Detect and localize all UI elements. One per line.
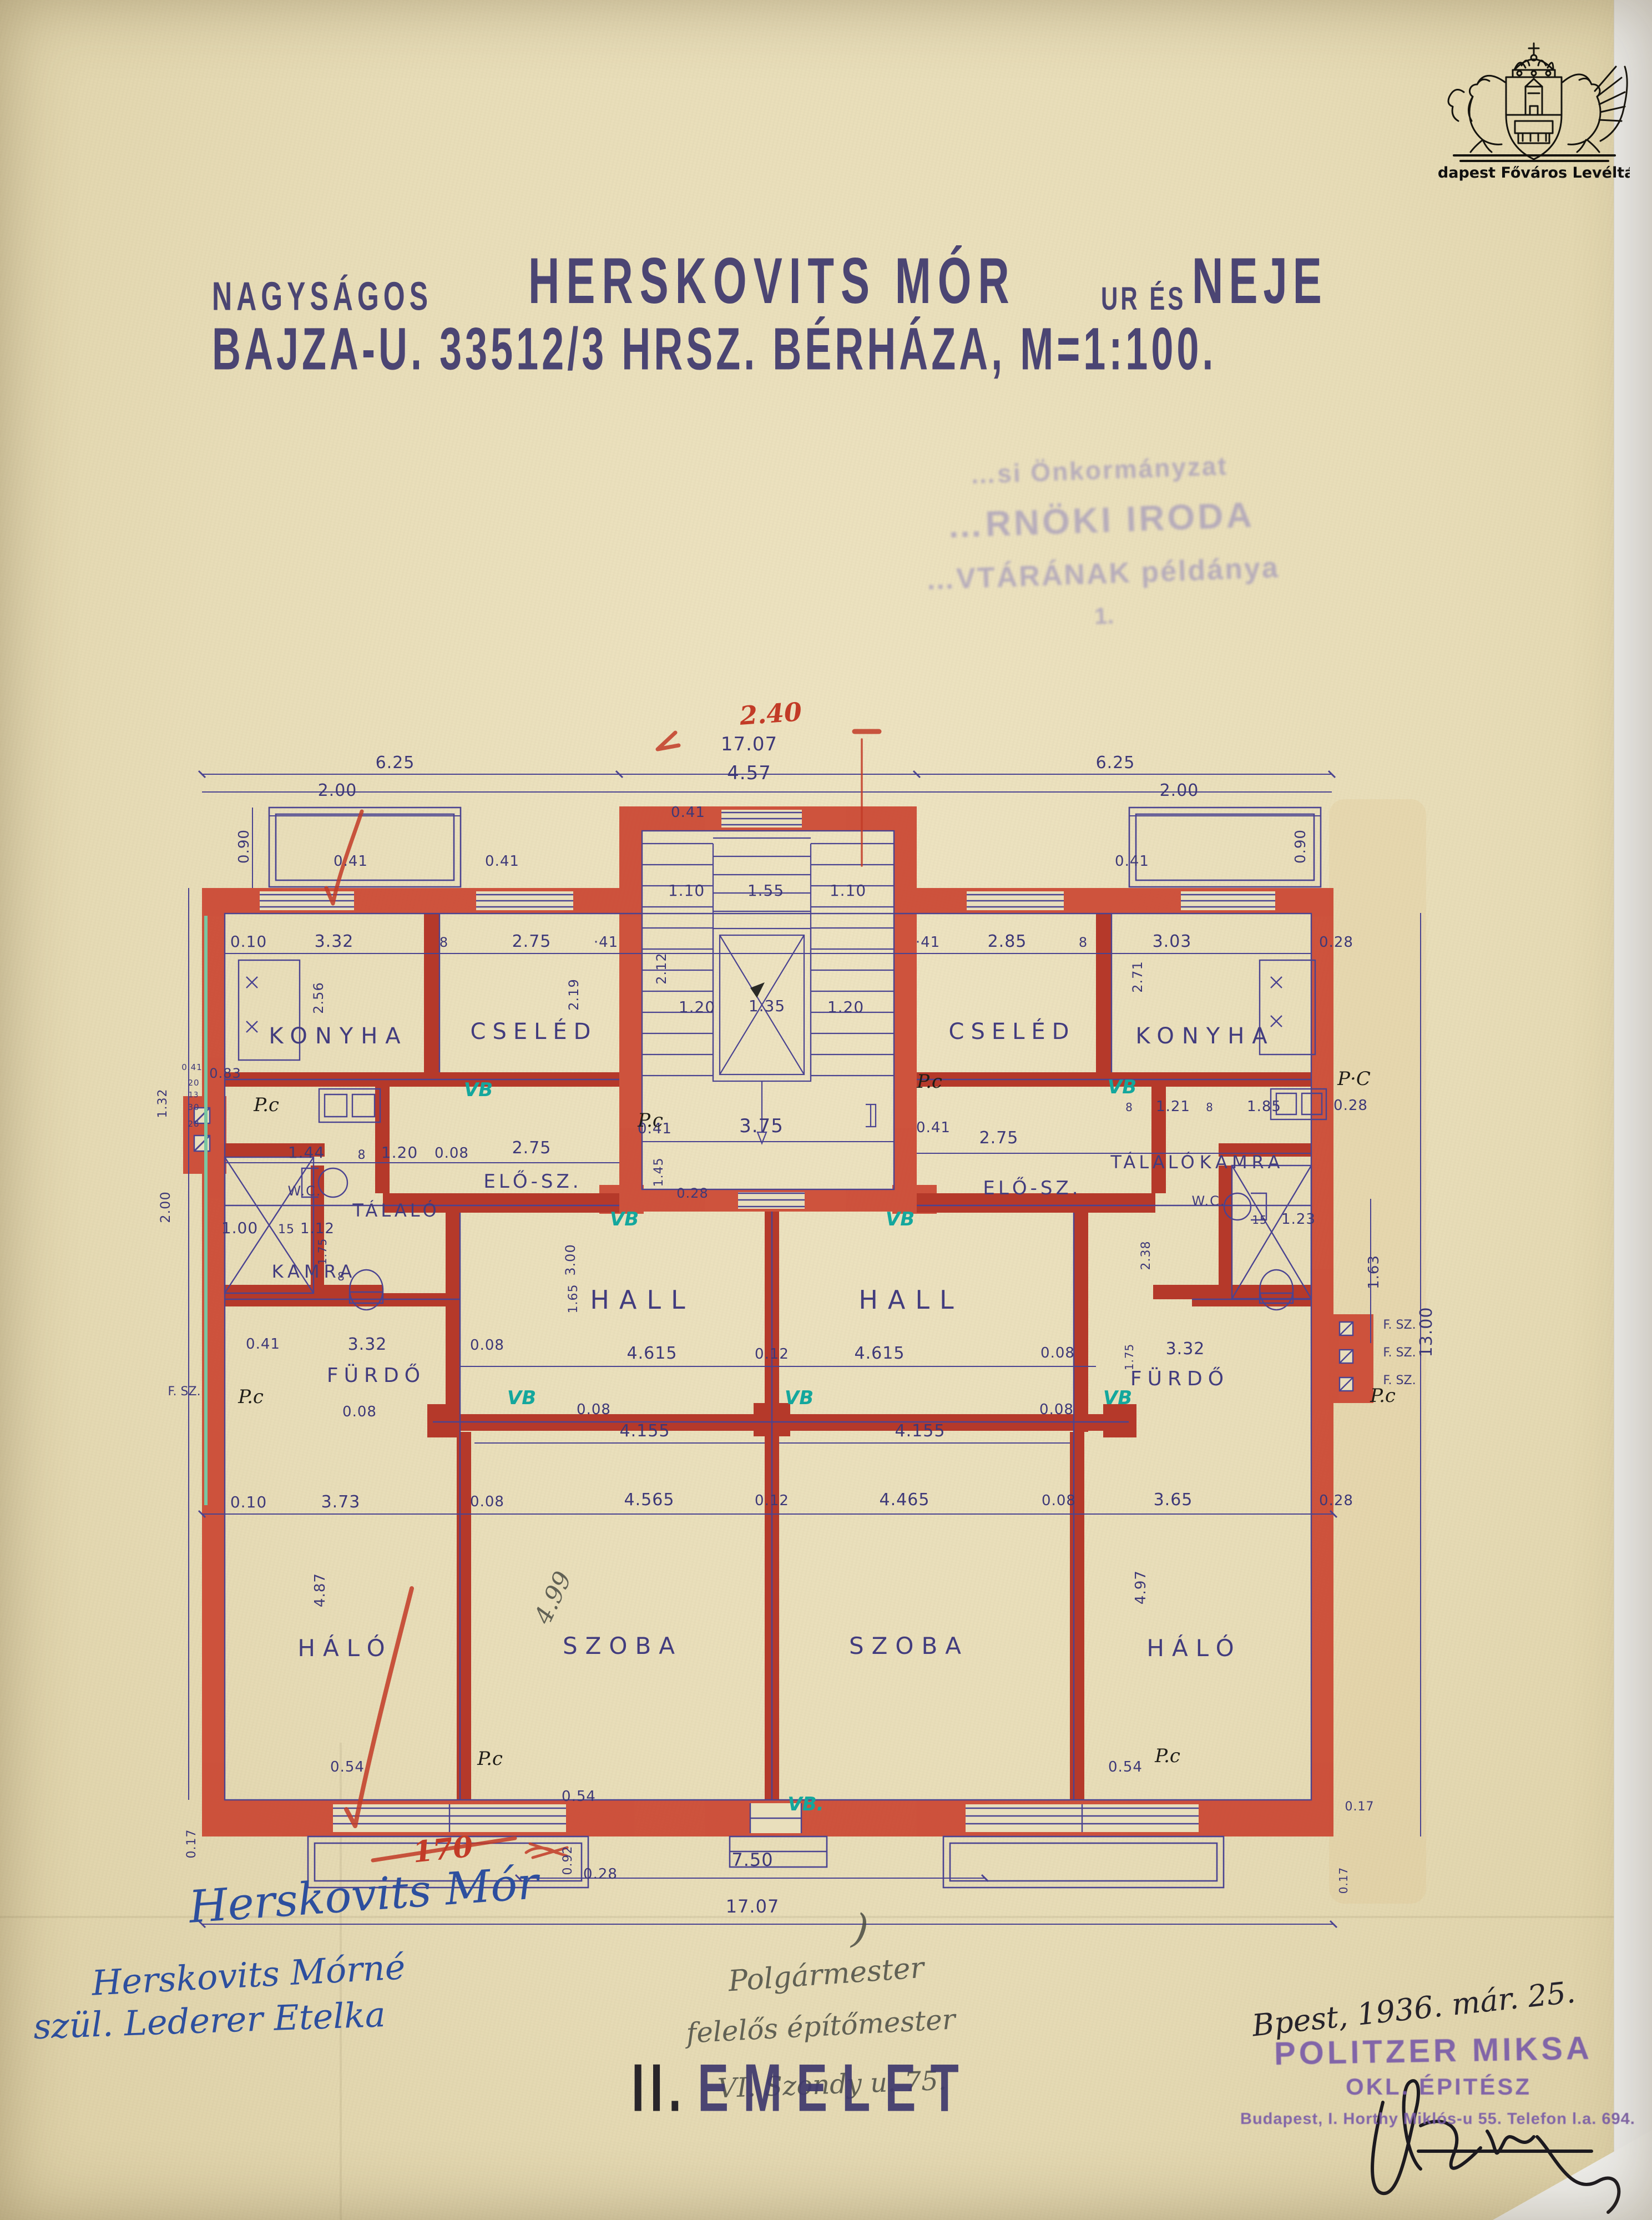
dim-label: 0.41	[671, 804, 705, 821]
dim-label: 0.41	[1115, 853, 1149, 870]
dim-label: 0.28	[1319, 1492, 1353, 1509]
dim-label: 0.08	[1040, 1345, 1075, 1361]
dim-label: 3.03	[1153, 932, 1192, 951]
pencil-note: 4.99	[529, 1567, 578, 1629]
pencil-note: felelős építőmester	[683, 2003, 958, 2050]
dim-label: 4.97	[1133, 1570, 1149, 1605]
dim-label: 4.155	[895, 1421, 946, 1441]
dim-label: 1.00	[221, 1219, 258, 1237]
dim-label: 7.50	[731, 1849, 773, 1870]
dim-label: 2.19	[566, 978, 582, 1010]
dim-label: 0.41	[334, 853, 368, 870]
dim-label: 2.85	[988, 932, 1027, 951]
room-label: TÁLALÓ	[1110, 1151, 1198, 1173]
dim-label: 0.54	[330, 1759, 365, 1775]
dim-label: 1.23	[1281, 1211, 1316, 1228]
dim-label: 0.28	[1333, 1097, 1368, 1114]
dim-label: 2.75	[512, 932, 552, 951]
red-note: 2.40	[738, 697, 803, 731]
dim-label: 4.615	[627, 1344, 678, 1363]
dim-label: 0.17	[1337, 1867, 1350, 1894]
pc-label: P.c	[1370, 1385, 1396, 1407]
red-angle-mark	[658, 733, 679, 749]
pencil-note: Polgármester	[727, 1951, 927, 1999]
pc-label: P.c	[238, 1386, 264, 1408]
dim-label: 0.17	[185, 1829, 199, 1859]
dim-label: 8	[337, 1270, 345, 1283]
dim-label: 1.63	[1366, 1255, 1382, 1289]
dim-label: 1.75	[1123, 1344, 1136, 1371]
architect-signature	[1372, 2081, 1619, 2212]
dim-label: 0.54	[562, 1788, 596, 1805]
dim-label: 13.00	[1417, 1307, 1436, 1358]
dim-label: 4.465	[880, 1490, 930, 1510]
room-label: ELŐ-SZ.	[483, 1170, 582, 1193]
dim-label: 17.07	[721, 733, 777, 755]
dim-label: 1.35	[749, 997, 785, 1015]
room-label: FÜRDŐ	[1130, 1367, 1229, 1390]
dim-label: 0.41	[485, 853, 519, 870]
dim-label: 17.07	[726, 1896, 780, 1917]
dim-label: 1.75	[316, 1238, 329, 1265]
dim-label: 0.08	[470, 1494, 504, 1510]
dim-label: 2.00	[318, 781, 357, 800]
dim-label: 2.00	[1160, 781, 1199, 800]
dim-label: 0.28	[1319, 934, 1353, 951]
vb-label: VB	[785, 1387, 814, 1409]
dim-label: 20	[188, 1078, 199, 1088]
floor-title-roman: II.	[632, 2049, 687, 2127]
pc-label: P.c	[477, 1748, 503, 1770]
dim-label: 1.10	[830, 881, 866, 900]
dim-label: 3.32	[348, 1335, 387, 1354]
dim-label: 1.10	[668, 881, 705, 900]
dim-label: 1.12	[300, 1220, 335, 1237]
room-label: FÜRDŐ	[327, 1364, 426, 1387]
pc-label: P·C	[1337, 1068, 1371, 1090]
room-label: ELŐ-SZ.	[983, 1177, 1081, 1199]
vb-label: VB	[507, 1387, 536, 1409]
dim-label: 0.08	[470, 1337, 504, 1354]
dim-label: 1.44	[288, 1143, 325, 1162]
room-label: SZOBA	[849, 1632, 969, 1659]
dim-label: 1.20	[381, 1143, 418, 1162]
dim-label: 8	[439, 935, 448, 950]
dim-label: 1.45	[652, 1158, 666, 1187]
dim-label: 0.28	[676, 1185, 708, 1201]
dim-label: 0.08	[577, 1401, 611, 1418]
room-label: KONYHA	[269, 1023, 408, 1049]
dim-label: 2.56	[311, 982, 326, 1013]
vb-label: VB	[1108, 1076, 1136, 1098]
pc-label: P.c	[916, 1071, 942, 1093]
dim-label: 15	[278, 1223, 295, 1237]
room-label: CSELÉD	[471, 1018, 598, 1045]
floor-title-word: EMELET	[698, 2049, 973, 2127]
dim-label: 0.08	[1042, 1492, 1076, 1509]
dim-label: 30	[188, 1102, 199, 1112]
dim-label: 2.00	[158, 1191, 173, 1223]
vb-label: VB	[464, 1079, 493, 1101]
dim-label: 8	[1125, 1101, 1133, 1114]
vb-label: VB	[886, 1208, 915, 1230]
room-label: SZOBA	[563, 1632, 683, 1659]
dim-label: 0.12	[755, 1492, 789, 1509]
vb-label: VB	[1103, 1387, 1132, 1409]
vb-label: VB.	[787, 1793, 824, 1815]
dim-label: 6.25	[1096, 753, 1135, 773]
dim-label: 0.08	[1039, 1401, 1074, 1418]
floor-title: II. EMELET	[632, 2049, 973, 2103]
dim-label: 0.10	[230, 932, 267, 951]
vb-label: VB	[610, 1208, 639, 1230]
dim-label: 2.75	[512, 1138, 552, 1158]
dim-label: 4.87	[312, 1573, 329, 1607]
pencil-flag-mark	[750, 982, 765, 998]
room-label: KONYHA	[1135, 1023, 1275, 1049]
fsz-label: F. SZ.	[168, 1385, 200, 1399]
dim-label: 3.75	[739, 1115, 784, 1137]
architect-stamp-name: POLITZER MIKSA	[1274, 2030, 1593, 2072]
dim-label: 2.12	[654, 952, 669, 984]
scanned-blueprint-page: Budapest Főváros Levéltára NAGYSÁGOS HER…	[0, 0, 1652, 2220]
dim-label: 0.08	[342, 1404, 377, 1420]
dim-label: 0.54	[1108, 1759, 1143, 1775]
pc-label: P.c	[637, 1109, 663, 1132]
architect-stamp-title: OKL. ÉPITÉSZ	[1346, 2073, 1532, 2100]
dim-label: 1.21	[1156, 1098, 1190, 1115]
dim-label: 1.85	[1247, 1098, 1281, 1115]
dim-label: 4.57	[727, 762, 771, 784]
pencil-note: )	[849, 1905, 871, 1953]
dim-label: 0.08	[435, 1145, 469, 1162]
dim-label: 3.65	[1154, 1490, 1193, 1510]
fsz-label: F. SZ.	[1383, 1318, 1416, 1332]
dim-label: 3.73	[321, 1492, 361, 1512]
dim-label: 1.20	[827, 998, 864, 1016]
dim-label: 15	[1252, 1213, 1267, 1227]
dim-label: 1.20	[679, 998, 715, 1016]
dim-label: 0.12	[755, 1346, 789, 1363]
dim-label: 0.90	[1292, 829, 1309, 864]
room-label: HALL	[858, 1285, 963, 1315]
dim-label: 0.90	[236, 829, 252, 864]
fsz-label: F. SZ.	[1383, 1346, 1416, 1360]
dim-label: 1.65	[567, 1284, 580, 1314]
dim-label: 13	[189, 1091, 199, 1099]
dim-label: 1.32	[156, 1089, 170, 1118]
room-label: HÁLÓ	[297, 1634, 392, 1662]
dim-label: 0.83	[209, 1066, 241, 1081]
dim-label: 6.25	[376, 753, 415, 773]
dim-label: 0.41	[916, 1119, 951, 1136]
dim-label: ·41	[916, 934, 940, 951]
dim-label: 2.75	[979, 1128, 1019, 1148]
room-label: TÁLALÓ	[352, 1199, 439, 1221]
dim-label: 3.32	[315, 932, 354, 951]
dim-label: 8	[1206, 1101, 1214, 1114]
dim-label: 4.565	[624, 1490, 675, 1510]
dim-label: 3.32	[1166, 1339, 1205, 1359]
dim-label: 0.92	[561, 1846, 575, 1875]
dim-label: 2.38	[1139, 1241, 1153, 1270]
dim-label: 8	[1079, 935, 1088, 950]
dim-label: 0.41	[246, 1336, 280, 1353]
dim-label: ·41	[594, 934, 618, 951]
fsz-label: F. SZ.	[1383, 1374, 1416, 1388]
dim-label: 0.28	[583, 1866, 618, 1883]
dim-label: 0.10	[230, 1493, 267, 1511]
room-label: HALL	[590, 1285, 695, 1315]
room-label: KAMRA	[1200, 1152, 1285, 1173]
room-label: CSELÉD	[949, 1018, 1076, 1045]
dim-label: 2.71	[1130, 961, 1145, 992]
dim-label: 4.615	[855, 1344, 905, 1363]
pc-label: P.c	[253, 1094, 279, 1116]
dim-label: 3.00	[563, 1244, 578, 1275]
dim-label: 0.41	[181, 1062, 202, 1072]
room-label: W.C.	[1192, 1193, 1226, 1209]
room-label: HÁLÓ	[1146, 1634, 1241, 1662]
dim-label: 8	[358, 1148, 366, 1162]
dim-label: 0.17	[1345, 1800, 1375, 1814]
pc-label: P.c	[1154, 1745, 1180, 1767]
architect-stamp-address: Budapest, I. Horthy Miklós-u 55. Telefon…	[1240, 2110, 1635, 2128]
room-label: W.C.	[288, 1183, 322, 1199]
dim-label: 4.155	[620, 1421, 670, 1441]
dim-label: 1.55	[747, 881, 784, 900]
dim-label: 28	[188, 1119, 199, 1129]
